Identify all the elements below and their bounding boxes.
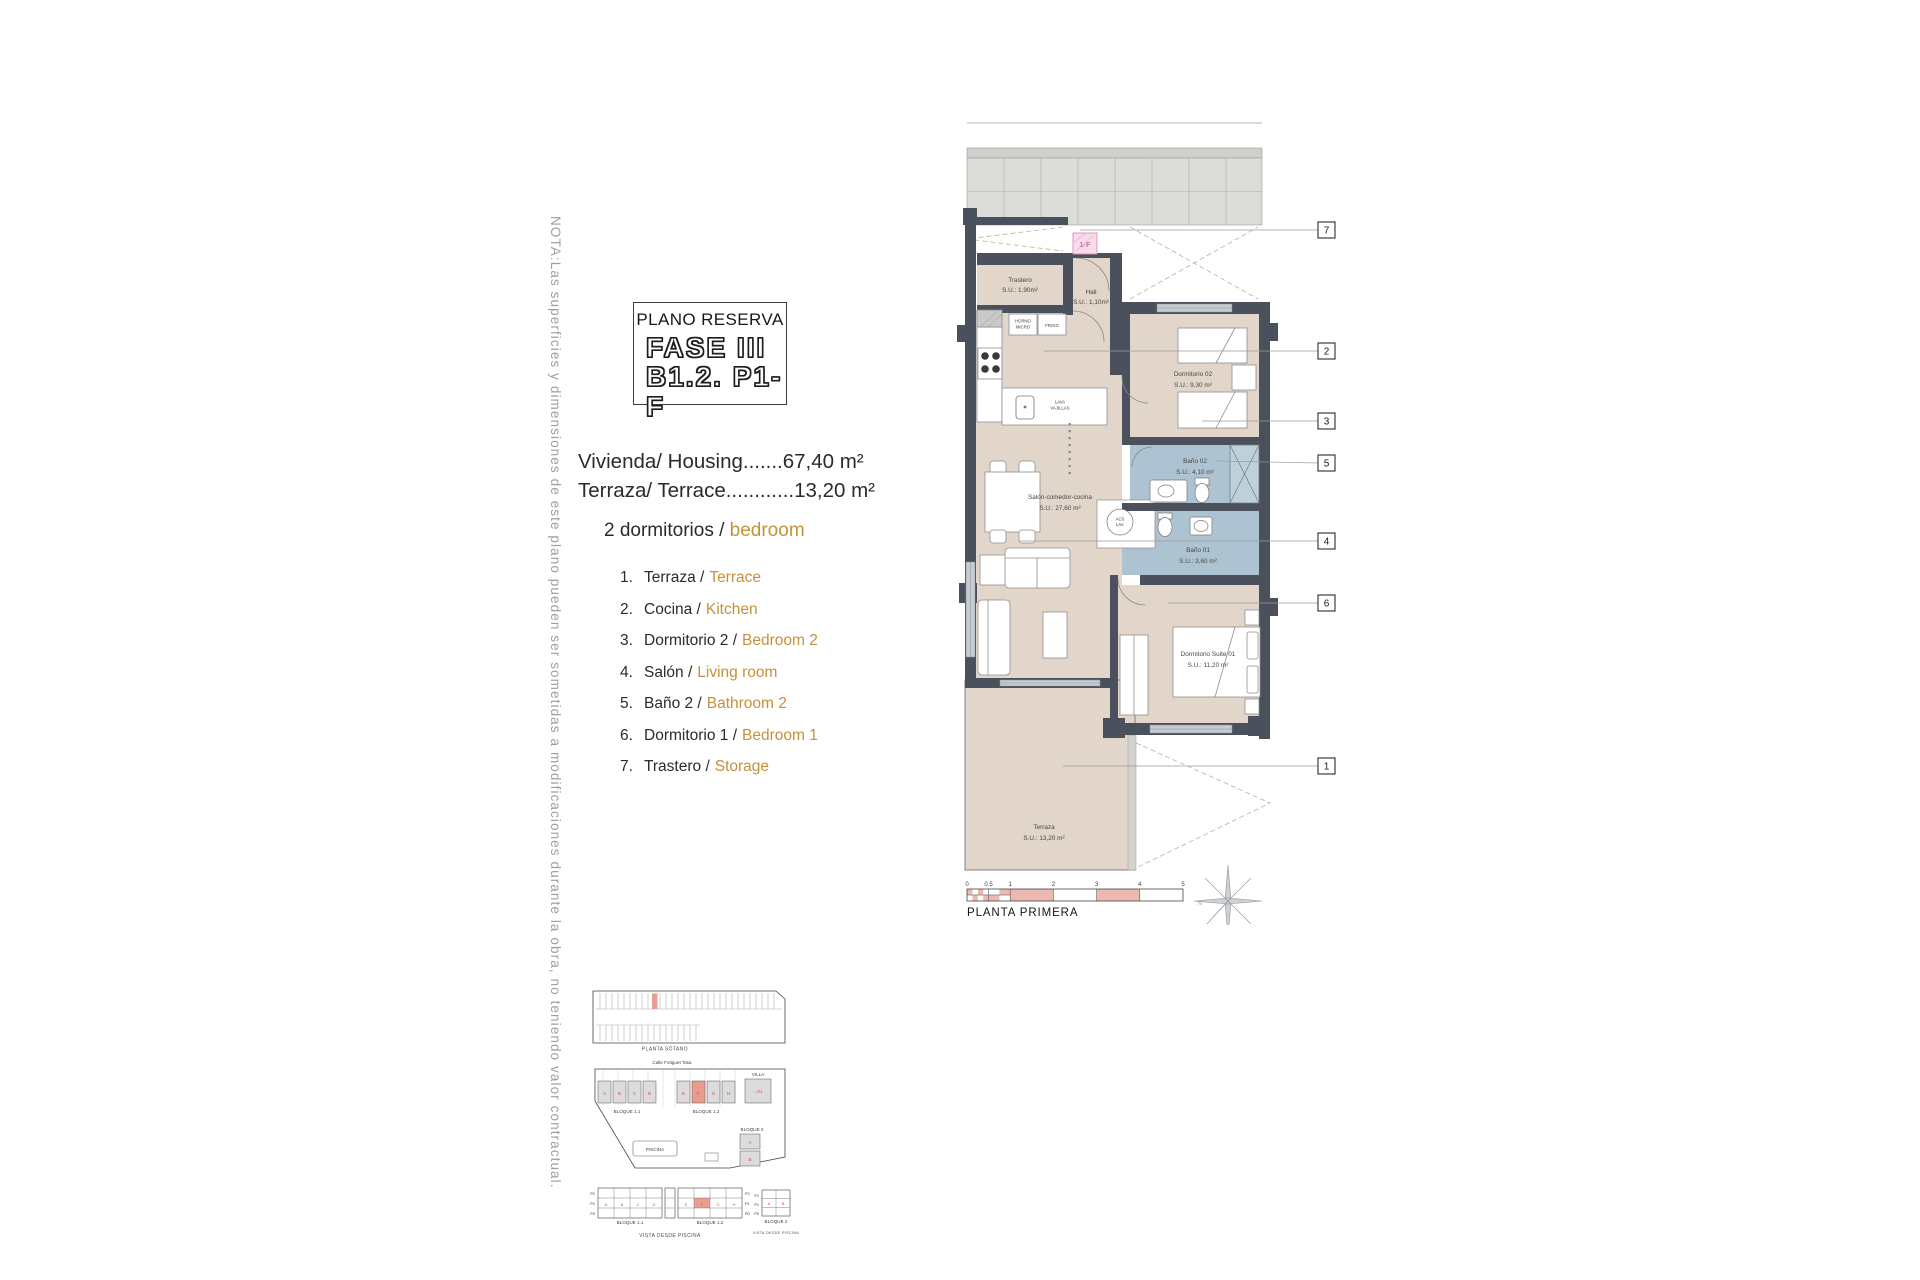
side-table (980, 555, 1007, 585)
unit-tag-label: 1-F (1079, 240, 1091, 249)
bedrooms-es: 2 dormitorios / (604, 520, 724, 541)
svg-text:3: 3 (1095, 882, 1099, 888)
svg-text:H: H (733, 1202, 736, 1207)
dining-table (985, 472, 1040, 532)
svg-text:G: G (712, 1091, 716, 1096)
legend-item: 1.Terraza /Terrace (620, 569, 818, 587)
svg-text:...01: ...01 (754, 1089, 763, 1094)
svg-text:0.5: 0.5 (984, 882, 993, 888)
bedside-table (1232, 365, 1256, 390)
svg-text:S.U.: 9,30 m²: S.U.: 9,30 m² (1174, 382, 1212, 389)
svg-text:P0: P0 (590, 1212, 595, 1216)
appliance-label: LAVA (1055, 400, 1065, 405)
bath1-sink (1190, 517, 1212, 535)
svg-text:A: A (768, 1201, 771, 1206)
coffee-table (1043, 612, 1067, 658)
elevation-caption: VISTA DESDE PISCINA (753, 1231, 799, 1235)
terrace-area-line: Terraza/ Terrace............13,20 m² (578, 476, 875, 505)
basement-plan: PLANTA SÓTANO (593, 991, 785, 1053)
disclaimer-note-vertical: NOTA:Las superficies y dimensiones de es… (548, 216, 563, 1076)
room-label: Trastero (1008, 277, 1032, 284)
svg-text:E: E (682, 1091, 685, 1096)
svg-text:5: 5 (1324, 459, 1330, 470)
elevation-views: P2 P1 P0 A B C D BLOQUE 1.1 E F G H P2 P… (590, 1188, 799, 1239)
svg-text:1: 1 (1324, 762, 1330, 773)
svg-text:1: 1 (1009, 882, 1013, 888)
floor-plan: 1-F Trastero S.U.: 1,90m² Hall S.U.: 1,1… (940, 115, 1350, 925)
svg-text:2: 2 (1052, 882, 1056, 888)
room-label: Hall (1085, 289, 1096, 296)
svg-text:P2: P2 (754, 1194, 759, 1198)
appliance-label: HORNO (1015, 319, 1032, 324)
callout-boxes (1318, 222, 1335, 774)
svg-text:S.U.: 1,10m²: S.U.: 1,10m² (1073, 299, 1109, 306)
svg-text:S.U.: 3,60 m²: S.U.: 3,60 m² (1179, 558, 1217, 565)
plan-caption: PLANTA PRIMERA (967, 907, 1078, 919)
site-plans: PLANTA SÓTANO Calle Fotiguet Tasa A B C … (580, 985, 810, 1260)
legend-item: 6.Dormitorio 1 /Bedroom 1 (620, 727, 818, 745)
svg-text:4: 4 (1324, 537, 1330, 548)
pillow (1247, 666, 1258, 693)
basement-caption: PLANTA SÓTANO (642, 1046, 688, 1053)
bath2-sink (1150, 480, 1187, 502)
appliance-label: ACS (1116, 517, 1125, 522)
single-bed (1178, 392, 1247, 428)
legend-item: 5.Baño 2 /Bathroom 2 (620, 695, 818, 713)
room-label: Terraza (1033, 824, 1055, 831)
svg-text:B: B (621, 1202, 624, 1207)
legend-item: 3.Dormitorio 2 /Bedroom 2 (620, 632, 818, 650)
svg-text:B: B (782, 1201, 785, 1206)
svg-text:P2: P2 (745, 1192, 750, 1196)
svg-text:C: C (637, 1202, 640, 1207)
single-bed (1178, 328, 1247, 363)
appliance-label: FRIGO (1045, 323, 1059, 328)
chair (990, 530, 1006, 543)
bedrooms-en: bedroom (730, 520, 805, 541)
svg-text:LAV.: LAV. (1116, 522, 1125, 527)
svg-text:D: D (653, 1202, 656, 1207)
sofa (1005, 548, 1070, 588)
room-label: Baño 01 (1186, 547, 1210, 554)
bloque2-label: BLOQUE 2 (741, 1127, 764, 1132)
room-label: Salón-comedor-cocina (1028, 494, 1092, 501)
toilet (1158, 518, 1172, 537)
svg-text:B: B (618, 1091, 621, 1096)
svg-text:S.U.: 13,20 m²: S.U.: 13,20 m² (1023, 835, 1064, 842)
compass-north-label: N (1198, 901, 1202, 907)
unit-tag: 1-F (1073, 233, 1097, 254)
room-label: Dormitorio Suite 01 (1181, 651, 1236, 658)
svg-text:MICRO: MICRO (1016, 325, 1031, 330)
svg-text:S.U.: 27,60 m²: S.U.: 27,60 m² (1039, 505, 1080, 512)
hall-floor (1073, 258, 1110, 315)
pillow (1247, 632, 1258, 659)
bloque11-label: BLOQUE 1.1 (614, 1109, 641, 1114)
svg-text:6: 6 (1324, 599, 1330, 610)
svg-text:P0: P0 (754, 1212, 759, 1216)
site-plan: A B C D BLOQUE 1.1 E F G H BLOQUE 1.2 VI… (595, 1069, 785, 1168)
street-label: Calle Fotiguet Tasa (652, 1060, 692, 1065)
svg-text:3: 3 (1324, 417, 1330, 428)
svg-text:B: B (748, 1157, 751, 1162)
highlighted-parking (652, 994, 658, 1010)
svg-text:P1: P1 (754, 1203, 759, 1207)
bedside-table (1245, 699, 1259, 714)
terrace-slab-edge (1128, 735, 1136, 870)
svg-text:F: F (697, 1091, 700, 1096)
bloque12-label: BLOQUE 1.2 (693, 1109, 720, 1114)
svg-text:P1: P1 (745, 1202, 750, 1206)
villa-label: VILLA (752, 1072, 765, 1077)
svg-text:P0: P0 (745, 1212, 750, 1216)
compass-icon: N (1194, 865, 1262, 925)
elev-bloque11-label: BLOQUE 1.1 (617, 1220, 644, 1225)
svg-text:0: 0 (965, 882, 969, 888)
upper-terrace-grid (967, 123, 1262, 225)
svg-text:P1: P1 (590, 1202, 595, 1206)
svg-text:A: A (605, 1202, 608, 1207)
legend-item: 2.Cocina /Kitchen (620, 601, 818, 619)
bedside-table (1245, 610, 1259, 625)
bedrooms-line: 2 dormitorios / bedroom (604, 520, 805, 542)
housing-area-line: Vivienda/ Housing.......67,40 m² (578, 447, 875, 476)
stove (978, 348, 1002, 379)
legend-item: 7.Trastero /Storage (620, 758, 818, 776)
title-block: PLANO RESERVA FASE III B1.2. P1-F (633, 302, 787, 405)
svg-text:P2: P2 (590, 1192, 595, 1196)
svg-text:S.U.: 11,20 m²: S.U.: 11,20 m² (1188, 662, 1229, 669)
piscina-label: PISCINA (646, 1147, 665, 1152)
phase-label: FASE III (634, 333, 786, 362)
scale-bar: 0 0.5 1 2 3 4 5 PLANTA PRIMERA (965, 882, 1185, 919)
room-legend: 1.Terraza /Terrace 2.Cocina /Kitchen 3.D… (620, 569, 818, 790)
legend-item: 4.Salón /Living room (620, 664, 818, 682)
surface-measurements: Vivienda/ Housing.......67,40 m² Terraza… (578, 447, 875, 505)
unit-code-label: B1.2. P1-F (634, 362, 786, 421)
svg-text:5: 5 (1181, 882, 1185, 888)
svg-text:7: 7 (1324, 226, 1330, 237)
room-label: Baño 02 (1183, 458, 1207, 465)
elev-bloque2-label: BLOQUE 2 (765, 1219, 788, 1224)
svg-text:2: 2 (1324, 347, 1330, 358)
room-label: Dormitorio 02 (1174, 371, 1213, 378)
toilet (1195, 484, 1209, 503)
callout-numbers: 7 2 3 5 4 6 1 (1324, 226, 1330, 773)
elev-bloque12-label: BLOQUE 1.2 (697, 1220, 724, 1225)
sofa-2 (978, 600, 1010, 675)
svg-text:S.U.: 4,10 m²: S.U.: 4,10 m² (1176, 469, 1214, 476)
svg-text:E: E (685, 1202, 688, 1207)
svg-text:4: 4 (1138, 882, 1142, 888)
plan-type-label: PLANO RESERVA (634, 303, 786, 330)
svg-text:VAJILLAS: VAJILLAS (1050, 406, 1069, 411)
elevation-caption: VISTA DESDE PISCINA (639, 1233, 701, 1239)
svg-text:S.U.: 1,90m²: S.U.: 1,90m² (1002, 287, 1038, 294)
svg-text:G: G (716, 1202, 719, 1207)
svg-text:H: H (727, 1091, 730, 1096)
